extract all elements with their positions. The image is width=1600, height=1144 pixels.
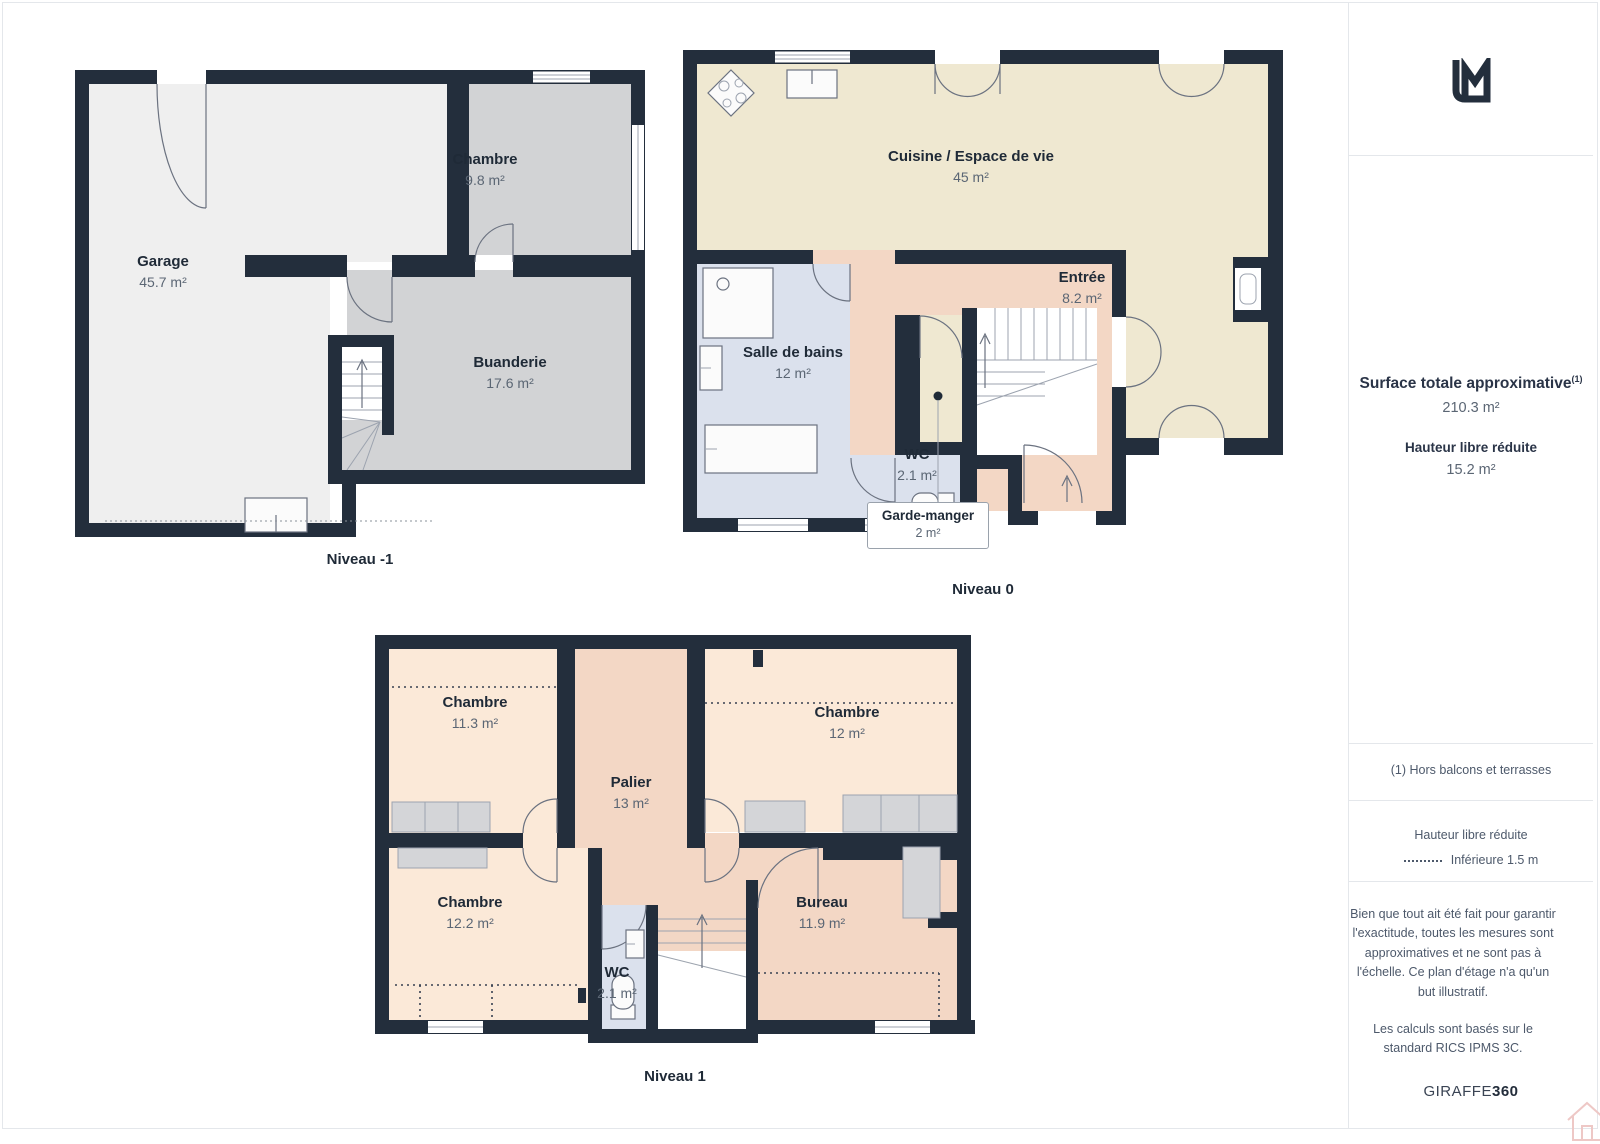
room-area: 2.1 m²: [517, 984, 717, 1003]
stairs: [342, 347, 382, 470]
divider: [1349, 800, 1593, 801]
room-label: Entrée 8.2 m²: [982, 268, 1182, 308]
footnote: (1) Hors balcons et terrasses: [1349, 763, 1593, 777]
room-name: WC: [517, 963, 717, 984]
room-name: Salle de bains: [693, 343, 893, 364]
room-area: 11.9 m²: [722, 914, 922, 933]
room-name: Cuisine / Espace de vie: [871, 147, 1071, 168]
legend-row: Inférieure 1.5 m: [1349, 853, 1593, 867]
floor-caption-niveau-1: Niveau 1: [375, 1068, 975, 1085]
room-label: Chambre 12 m²: [747, 703, 947, 743]
room-name: Garage: [63, 252, 263, 273]
room-label: Garage 45.7 m²: [63, 252, 263, 292]
summary-value: 210.3 m²: [1349, 400, 1593, 416]
room-label: WC 2.1 m²: [817, 445, 1017, 485]
legend: Hauteur libre réduite Inférieure 1.5 m: [1349, 828, 1593, 867]
room-name: Chambre: [375, 693, 575, 714]
garde-manger-callout: Garde-manger 2 m²: [867, 502, 989, 549]
company-logo: [1445, 58, 1497, 106]
room-label: Chambre 9.8 m²: [385, 150, 585, 190]
room-label: Salle de bains 12 m²: [693, 343, 893, 383]
divider: [1349, 743, 1593, 744]
room-area: 12 m²: [693, 364, 893, 383]
surface-summary: Surface totale approximative(1) 210.3 m²…: [1349, 374, 1593, 478]
room-area: 2.1 m²: [817, 466, 1017, 485]
legend-title: Hauteur libre réduite: [1349, 828, 1593, 842]
room-label: WC 2.1 m²: [517, 963, 717, 1003]
floor-plan-niveau-1: Chambre 11.3 m² Chambre 12 m² Palier 13 …: [375, 635, 975, 1055]
giraffe360-logo: GIRAFFE360: [1349, 1083, 1593, 1100]
room-name: Entrée: [982, 268, 1182, 289]
room-label: Buanderie 17.6 m²: [410, 353, 610, 393]
disclaimer-block: Bien que tout ait été fait pour garantir…: [1349, 905, 1593, 1100]
room-area: 45.7 m²: [63, 273, 263, 292]
room-label: Cuisine / Espace de vie 45 m²: [871, 147, 1071, 187]
house-watermark-icon: [1564, 1098, 1600, 1144]
room-label: Bureau 11.9 m²: [722, 893, 922, 933]
room-area: 11.3 m²: [375, 714, 575, 733]
room-name: Chambre: [370, 893, 570, 914]
divider: [1349, 155, 1593, 156]
legend-value: Inférieure 1.5 m: [1451, 853, 1539, 867]
room-area: 9.8 m²: [385, 171, 585, 190]
height-title: Hauteur libre réduite: [1349, 440, 1593, 455]
room-label: Chambre 11.3 m²: [375, 693, 575, 733]
floor-caption-niveau-0: Niveau 0: [683, 581, 1283, 598]
disclaimer-text-1: Bien que tout ait été fait pour garantir…: [1349, 905, 1557, 1002]
floor-plan-niveau-m1: Garage 45.7 m² Chambre 9.8 m² Buanderie …: [75, 70, 645, 540]
room-area: 17.6 m²: [410, 374, 610, 393]
summary-sup: (1): [1571, 374, 1582, 384]
room-area: 12 m²: [747, 724, 947, 743]
room-name: WC: [817, 445, 1017, 466]
floor-plan-niveau-m1-drawing: [75, 70, 645, 540]
room-name: Bureau: [722, 893, 922, 914]
summary-title: Surface totale approximative(1): [1349, 374, 1593, 393]
disclaimer-text-2: Les calculs sont basés sur le standard R…: [1349, 1020, 1557, 1059]
room-name: Chambre: [747, 703, 947, 724]
floor-plan-niveau-0: Cuisine / Espace de vie 45 m² Entrée 8.2…: [683, 50, 1283, 550]
room-area: 45 m²: [871, 168, 1071, 187]
dotted-line-icon: [1404, 860, 1442, 862]
brand-regular: GIRAFFE: [1423, 1083, 1492, 1100]
floor-caption-niveau-m1: Niveau -1: [75, 551, 645, 568]
height-value: 15.2 m²: [1349, 462, 1593, 478]
room-area: 2 m²: [874, 525, 982, 542]
room-area: 13 m²: [531, 794, 731, 813]
room-area: 12.2 m²: [370, 914, 570, 933]
summary-title-text: Surface totale approximative: [1360, 375, 1572, 392]
room-name: Buanderie: [410, 353, 610, 374]
stairs: [977, 308, 1097, 455]
room-name: Garde-manger: [874, 507, 982, 525]
brand-bold: 360: [1492, 1083, 1519, 1100]
room-name: Chambre: [385, 150, 585, 171]
room-name: Palier: [531, 773, 731, 794]
room-label: Chambre 12.2 m²: [370, 893, 570, 933]
divider: [1349, 881, 1593, 882]
room-area: 8.2 m²: [982, 289, 1182, 308]
room-label: Palier 13 m²: [531, 773, 731, 813]
